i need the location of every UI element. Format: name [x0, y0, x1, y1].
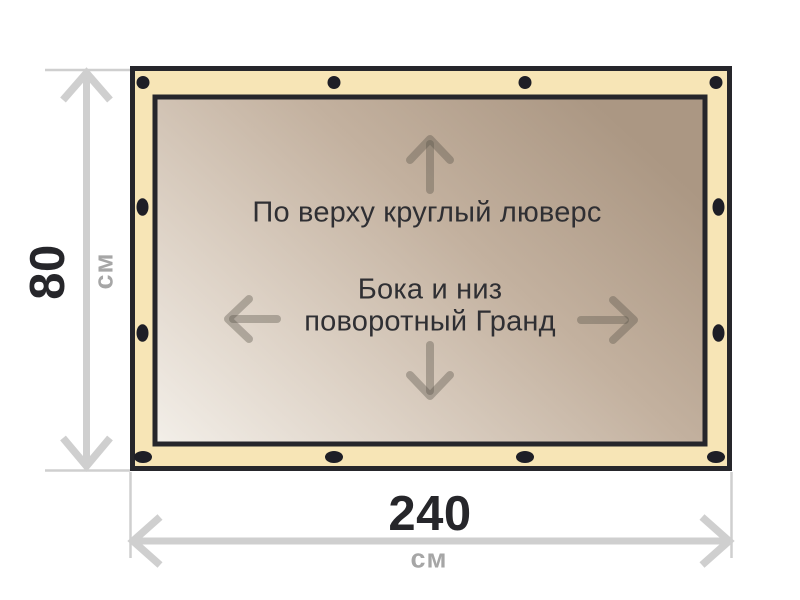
banner-dimension-diagram: По верху круглый люверс Бока и низ повор… — [0, 0, 800, 600]
sides-bottom-note-line1: Бока и низ — [358, 274, 502, 307]
grommet-round-icon — [519, 76, 532, 89]
grommet-oval-icon — [137, 198, 149, 216]
grommet-oval-icon — [713, 198, 725, 216]
sides-bottom-note-line2: поворотный Гранд — [304, 306, 556, 339]
grommet-oval-icon — [713, 324, 725, 342]
width-unit: см — [411, 544, 448, 575]
grommet-round-icon — [710, 76, 723, 89]
grommet-oval-icon — [516, 451, 534, 463]
top-grommet-note: По верху круглый люверс — [252, 197, 601, 230]
grommet-oval-icon — [137, 324, 149, 342]
height-value: 80 — [20, 244, 76, 300]
grommet-oval-icon — [707, 451, 725, 463]
grommet-round-icon — [137, 76, 150, 89]
grommet-oval-icon — [134, 451, 152, 463]
grommet-round-icon — [328, 76, 341, 89]
grommet-oval-icon — [325, 451, 343, 463]
width-value: 240 — [388, 486, 471, 542]
height-unit: см — [89, 253, 120, 290]
